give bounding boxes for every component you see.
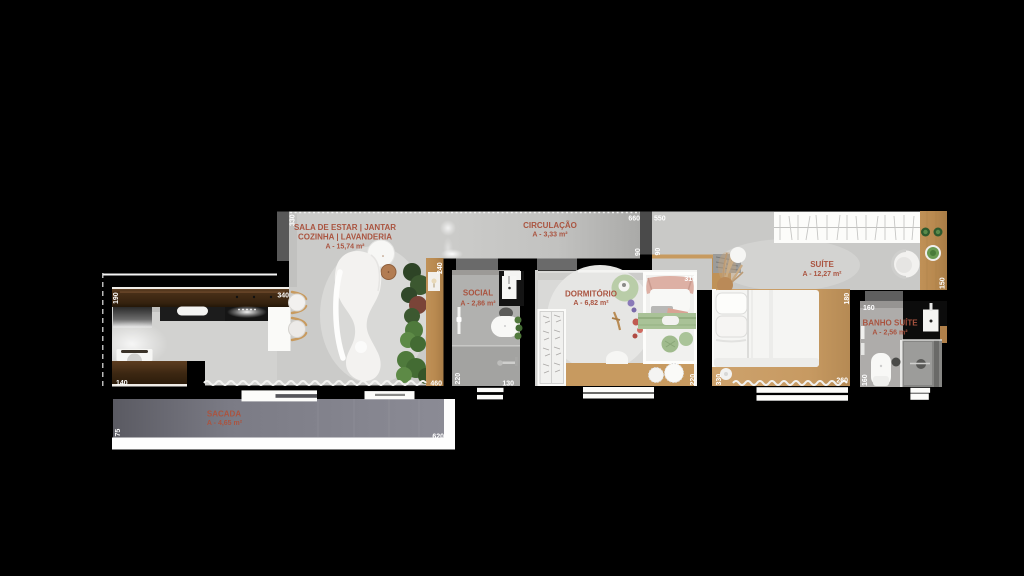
svg-text:460: 460: [430, 381, 442, 388]
svg-text:90: 90: [635, 248, 642, 256]
svg-text:620: 620: [432, 434, 444, 441]
svg-text:260: 260: [836, 378, 848, 385]
svg-text:310: 310: [684, 276, 696, 283]
svg-text:150: 150: [940, 277, 947, 289]
svg-text:A - 2,86 m²: A - 2,86 m²: [460, 301, 496, 308]
svg-text:130: 130: [502, 381, 514, 388]
svg-text:220: 220: [455, 373, 462, 385]
svg-text:160: 160: [863, 305, 875, 312]
svg-text:CIRCULAÇÃO: CIRCULAÇÃO: [523, 221, 577, 230]
svg-text:90: 90: [655, 248, 662, 256]
svg-text:SALA DE ESTAR | JANTAR: SALA DE ESTAR | JANTAR: [294, 223, 396, 232]
svg-text:180: 180: [844, 293, 851, 305]
svg-text:A - 6,82 m²: A - 6,82 m²: [573, 300, 609, 307]
svg-text:330: 330: [716, 374, 723, 386]
svg-text:75: 75: [115, 429, 122, 437]
svg-text:SACADA: SACADA: [207, 410, 241, 419]
svg-text:140: 140: [116, 380, 128, 387]
svg-text:190: 190: [113, 292, 120, 304]
svg-text:160: 160: [862, 374, 869, 386]
svg-text:SOCIAL: SOCIAL: [463, 289, 493, 298]
svg-text:240: 240: [437, 262, 444, 274]
svg-text:220: 220: [690, 374, 697, 386]
svg-text:330: 330: [290, 214, 297, 226]
svg-text:SUÍTE: SUÍTE: [810, 260, 834, 269]
svg-text:A - 15,74 m²: A - 15,74 m²: [325, 243, 365, 250]
svg-text:A - 3,33 m²: A - 3,33 m²: [532, 231, 568, 238]
svg-text:A - 4,65 m²: A - 4,65 m²: [207, 420, 243, 427]
svg-text:BANHO SUÍTE: BANHO SUÍTE: [862, 319, 918, 328]
svg-text:DORMITÓRIO: DORMITÓRIO: [565, 289, 617, 298]
svg-text:A - 2,56 m²: A - 2,56 m²: [872, 329, 908, 336]
svg-text:660: 660: [628, 216, 640, 223]
svg-text:A - 12,27 m²: A - 12,27 m²: [802, 271, 842, 278]
svg-text:COZINHA | LAVANDERIA: COZINHA | LAVANDERIA: [298, 232, 392, 241]
svg-text:550: 550: [654, 216, 666, 223]
svg-text:340: 340: [277, 293, 289, 300]
